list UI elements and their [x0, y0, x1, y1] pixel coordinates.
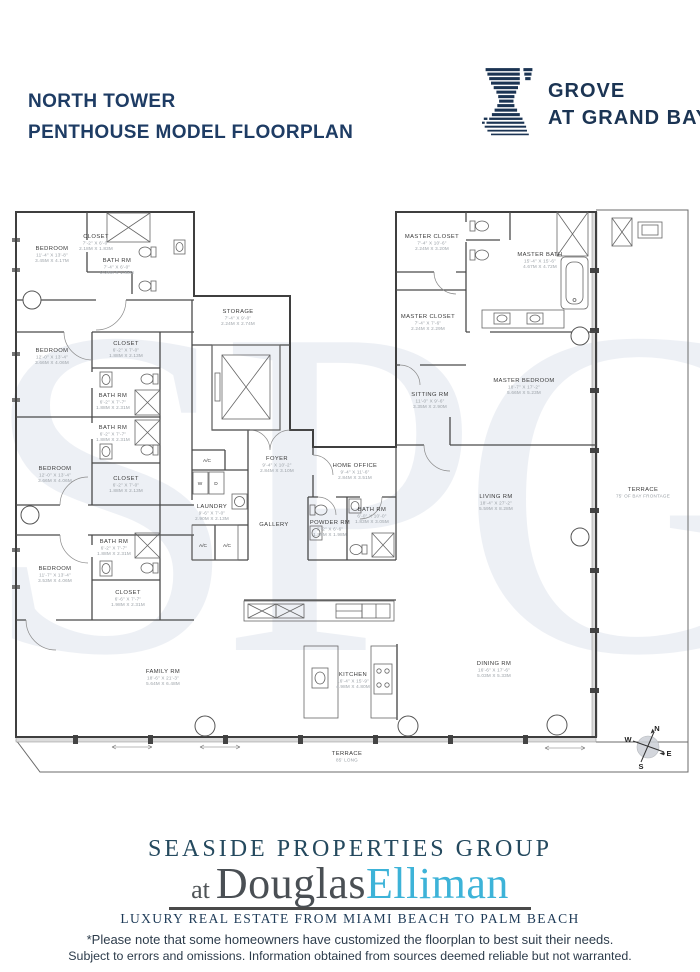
room-label: 2.24M X 1.83M	[100, 270, 134, 275]
room-label: A/C	[199, 543, 208, 549]
room-label: BEDROOM	[36, 246, 69, 252]
room-label: W	[198, 481, 203, 487]
room-label: 3.53M X 4.06M	[38, 578, 72, 583]
room-label: 4.98M X 4.80M	[336, 684, 370, 689]
room-label: 6'-2" X 6'-6"	[317, 527, 344, 532]
room-label: 5.03M X 5.33M	[477, 673, 511, 678]
room-label: 9'-6" X 7'-0"	[199, 511, 226, 516]
room-label: 2.24M X 3.20M	[415, 246, 449, 251]
room-label: 7'-4" X 6'-0"	[104, 265, 131, 270]
room-label: 1.88M X 2.31M	[96, 405, 130, 410]
room-label: CLOSET	[113, 341, 139, 347]
room-label: BATH RM	[99, 425, 127, 431]
room-label: 3.35M X 2.90M	[413, 404, 447, 409]
room-label: 1.88M X 2.13M	[109, 488, 143, 493]
room-label: 6'-2" X 7'-7"	[100, 432, 127, 437]
flyer-page: { "header": { "title_line1": "NORTH TOWE…	[0, 0, 700, 972]
room-label: 2.18M X 1.83M	[79, 246, 113, 251]
room-label: 1.88M X 2.13M	[109, 353, 143, 358]
room-label: A/C	[223, 543, 232, 549]
brand-douglas-elliman: at Douglas Elliman	[0, 858, 700, 909]
disclaimer-line-1: *Please note that some homeowners have c…	[0, 932, 700, 947]
room-label: 9'-4" X 10'-2"	[262, 463, 291, 468]
room-label: 7'-4" X 7'-6"	[415, 321, 442, 326]
room-label: SITTING RM	[411, 392, 449, 398]
floorplan-drawing: SPG	[0, 0, 700, 972]
room-label: D	[214, 481, 218, 487]
room-label: TERRACE	[332, 751, 363, 757]
room-label: 7'-4" X 10'-6"	[417, 241, 446, 246]
room-label: CLOSET	[83, 234, 109, 240]
room-label: 11'-7" X 13'-4"	[39, 573, 71, 578]
room-label: 3.66M X 4.06M	[38, 478, 72, 483]
compass-east-arrow	[659, 752, 664, 755]
room-label: KITCHEN	[339, 672, 367, 678]
room-label: 5.64M X 6.48M	[146, 681, 180, 686]
room-label: 11'-4" X 13'-8"	[36, 253, 68, 258]
room-label: 12'-0" X 13'-4"	[36, 355, 68, 360]
room-label: 18'-7" X 17'-2"	[508, 385, 540, 390]
room-label: LIVING RM	[479, 494, 512, 500]
room-label: GALLERY	[259, 522, 288, 528]
room-label: S	[638, 762, 643, 771]
room-label: MASTER CLOSET	[401, 314, 455, 320]
brand-tagline: LUXURY REAL ESTATE FROM MIAMI BEACH TO P…	[0, 911, 700, 927]
disclaimer-line-2: Subject to errors and omissions. Informa…	[0, 949, 700, 963]
room-label: 5.66M X 5.23M	[507, 390, 541, 395]
room-label: W	[624, 735, 632, 744]
room-label: MASTER BEDROOM	[493, 378, 554, 384]
room-label: BATH RM	[358, 507, 386, 513]
room-label: 2.24M X 2.29M	[411, 326, 445, 331]
room-label: CLOSET	[115, 590, 141, 596]
room-label: CLOSET	[113, 476, 139, 482]
room-label: BATH RM	[100, 539, 128, 545]
room-label: 3.45M X 4.17M	[35, 258, 69, 263]
room-label: POWDER RM	[310, 520, 350, 526]
room-label: HOME OFFICE	[333, 463, 378, 469]
room-label: 6'-2" X 7'-7"	[100, 400, 127, 405]
brand-divider	[169, 907, 531, 910]
brand-douglas: Douglas	[216, 858, 366, 909]
room-label: 18'-4" X 27'-2"	[480, 501, 512, 506]
room-label: 7'-2" X 6'-0"	[83, 241, 110, 246]
room-label: 2.84M X 3.10M	[260, 468, 294, 473]
room-label: STORAGE	[222, 309, 253, 315]
room-label: 4.67M X 4.72M	[523, 264, 557, 269]
room-label: 1.88M X 1.98M	[313, 532, 347, 537]
room-label: 6'-2" X 7'-0"	[113, 348, 140, 353]
room-label: 75' OF BAY FRONTAGE	[616, 494, 670, 499]
room-label: 85' LONG	[336, 758, 358, 763]
room-label: 16'-4" X 15'-9"	[337, 679, 369, 684]
room-label: FAMILY RM	[146, 669, 180, 675]
brand-at: at	[191, 875, 210, 905]
room-label: MASTER CLOSET	[405, 234, 459, 240]
room-label: 2.24M X 2.74M	[221, 321, 255, 326]
room-label: TERRACE	[628, 487, 659, 493]
room-label: 5.59M X 8.28M	[479, 506, 513, 511]
room-label: E	[666, 749, 671, 758]
room-label: 1.88M X 2.31M	[96, 437, 130, 442]
room-label: A/C	[203, 458, 212, 464]
room-label: 6'-2" X 7'-0"	[113, 483, 140, 488]
room-label: BEDROOM	[36, 348, 69, 354]
brand-elliman: Elliman	[366, 858, 509, 909]
room-label: N	[654, 724, 659, 733]
room-label: 11'-0" X 9'-6"	[416, 399, 445, 404]
room-label: 6'-6" X 7'-7"	[115, 597, 142, 602]
room-label: 2.84M X 3.51M	[338, 475, 372, 480]
room-label: BATH RM	[103, 258, 131, 264]
room-label: BATH RM	[99, 393, 127, 399]
room-label: 1.98M X 2.31M	[111, 602, 145, 607]
room-label: 1.83M X 3.05M	[355, 519, 389, 524]
room-label: DINING RM	[477, 661, 512, 667]
room-label: LAUNDRY	[197, 504, 227, 510]
room-label: 1.88M X 2.31M	[97, 551, 131, 556]
room-label: BEDROOM	[39, 466, 72, 472]
room-label: 12'-0" X 13'-4"	[39, 473, 71, 478]
room-label: 3.66M X 4.06M	[35, 360, 69, 365]
room-label: BEDROOM	[39, 566, 72, 572]
room-label: 18'-6" X 21'-3"	[147, 676, 179, 681]
room-label: 6'-2" X 7'-7"	[101, 546, 128, 551]
room-label: 15'-4" X 15'-6"	[524, 259, 556, 264]
room-label: MASTER BATH	[517, 252, 562, 258]
room-label: 9'-4" X 11'-6"	[341, 470, 370, 475]
room-label: 6'-0" X 10'-0"	[357, 514, 386, 519]
room-label: 2.90M X 2.13M	[195, 516, 229, 521]
room-label: 16'-6" X 17'-6"	[478, 668, 510, 673]
room-label: FOYER	[266, 456, 288, 462]
room-label: 7'-4" X 9'-0"	[225, 316, 252, 321]
